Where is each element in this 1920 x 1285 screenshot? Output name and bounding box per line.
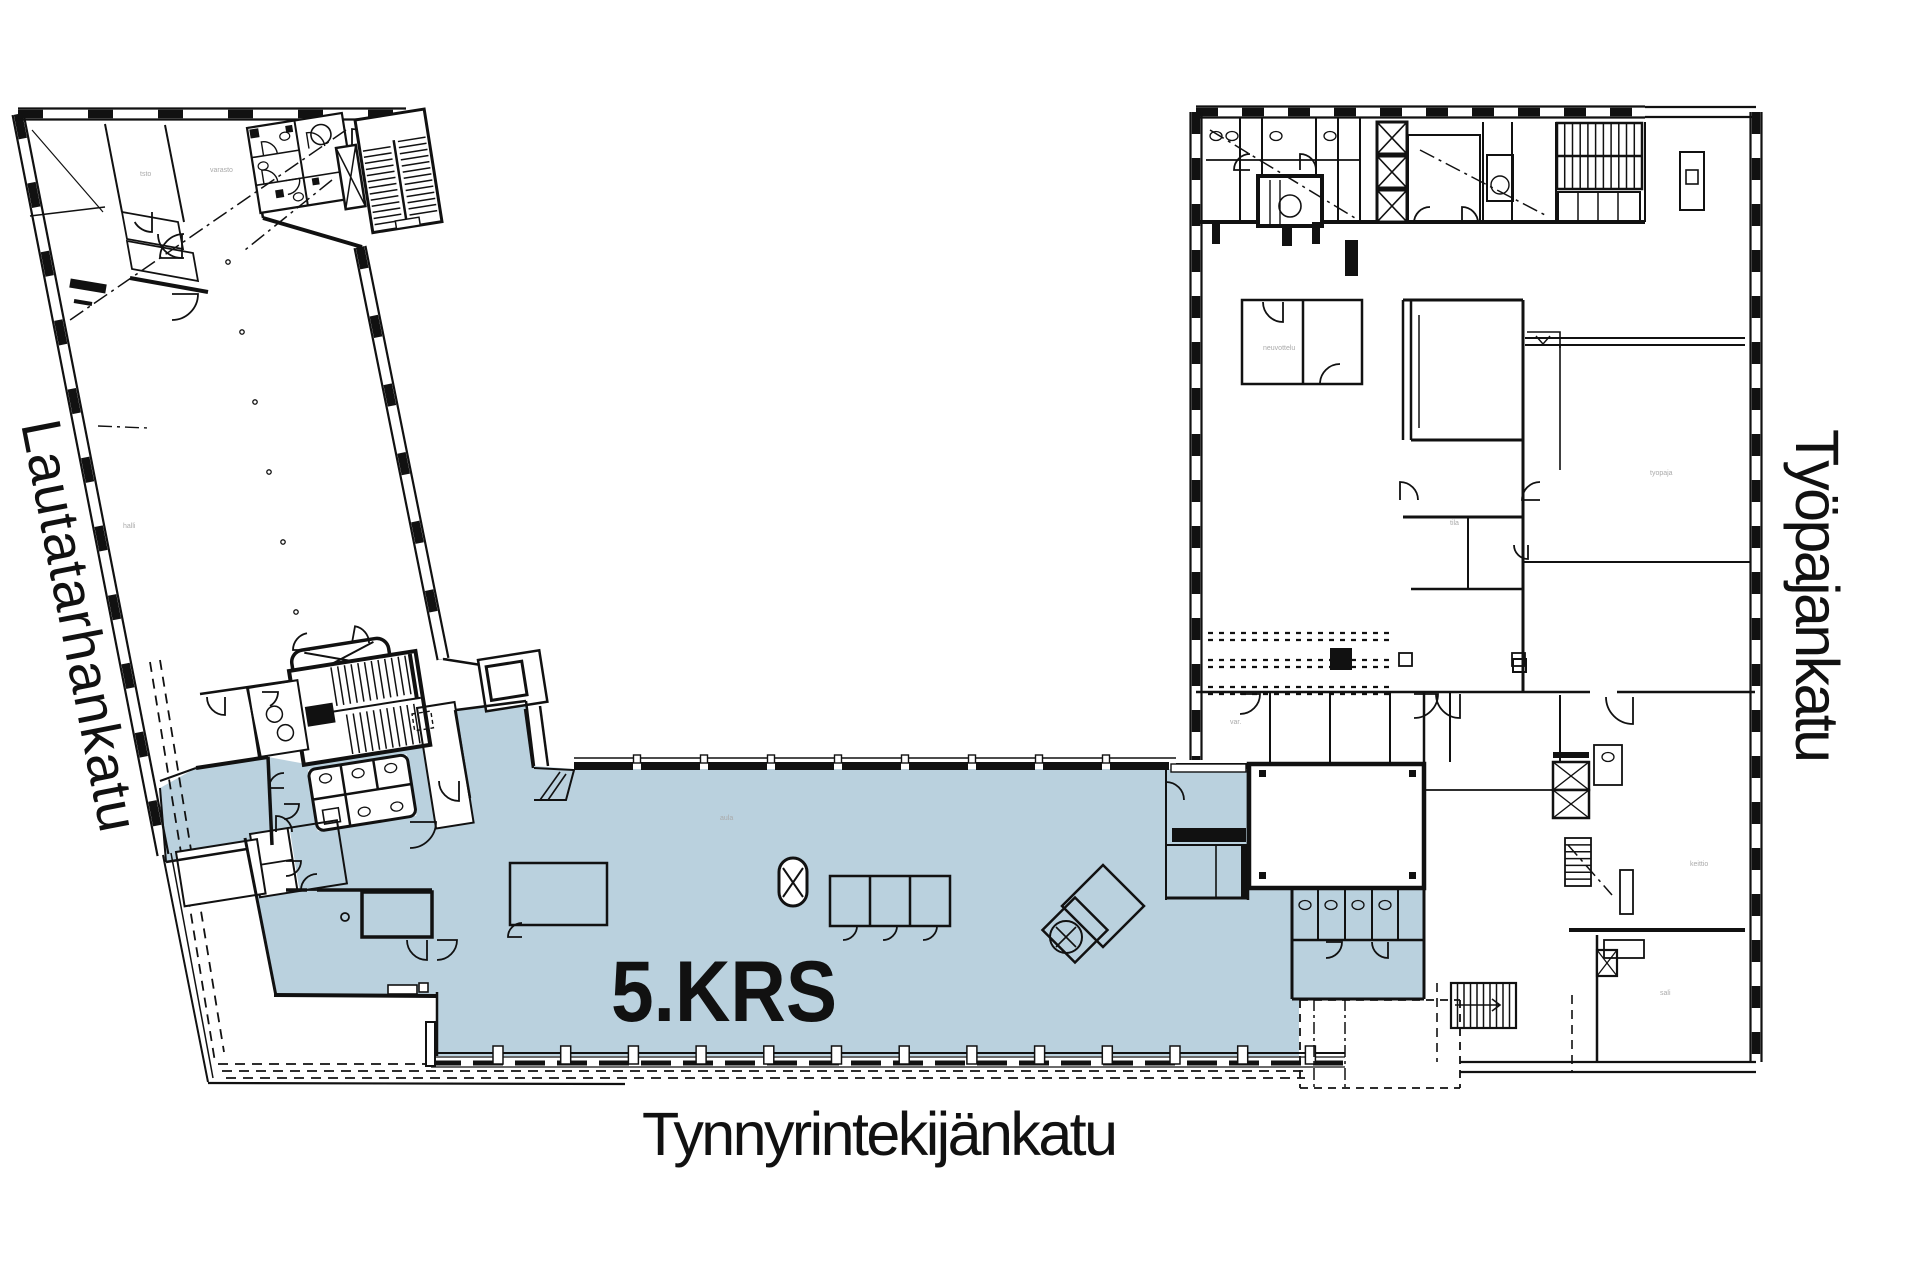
svg-text:Työpajankatu: Työpajankatu (1783, 429, 1851, 763)
svg-text:sali: sali (1660, 990, 1671, 997)
svg-text:5.KRS: 5.KRS (611, 944, 837, 1040)
svg-text:tila: tila (1450, 520, 1459, 527)
svg-text:var.: var. (1230, 719, 1241, 726)
svg-text:aula: aula (720, 815, 733, 822)
svg-text:tyopaja: tyopaja (1650, 470, 1673, 477)
svg-text:neuvottelu: neuvottelu (1263, 345, 1295, 352)
svg-text:keittio: keittio (1690, 861, 1708, 868)
svg-text:Tynnyrintekijänkatu: Tynnyrintekijänkatu (642, 1100, 1118, 1168)
svg-text:varasto: varasto (210, 167, 233, 174)
svg-text:halli: halli (123, 523, 136, 530)
svg-text:tsto: tsto (140, 171, 151, 178)
